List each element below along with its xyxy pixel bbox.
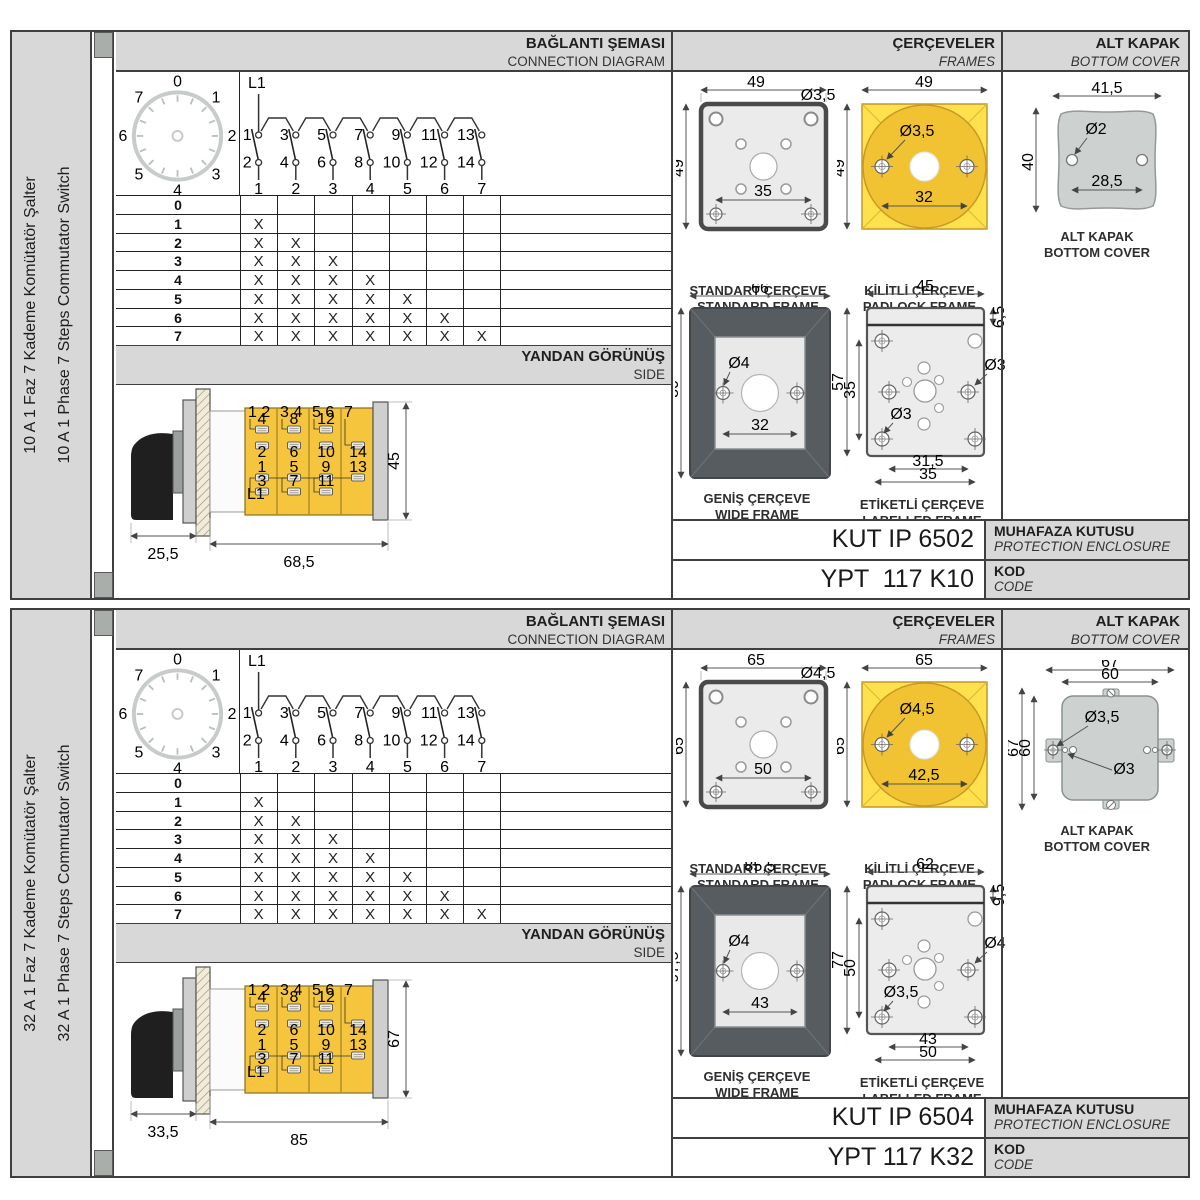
side-view-drawing: 1 24213L13 486575 612109117141333,58567	[116, 963, 673, 1176]
svg-text:2: 2	[243, 733, 252, 750]
svg-text:7: 7	[344, 982, 353, 999]
bottom-cover: 41,540Ø228,5 ALT KAPAK BOTTOM COVER	[1006, 82, 1188, 260]
svg-text:9,5: 9,5	[991, 884, 1008, 906]
svg-text:35: 35	[919, 466, 937, 483]
svg-text:Ø4,5: Ø4,5	[800, 665, 835, 682]
bottom-cover: 67606760Ø3,5Ø3 ALT KAPAK BOTTOM COVER	[1006, 660, 1188, 854]
connection-header-tr: BAĞLANTI ŞEMASI	[116, 35, 665, 54]
cover-header-en: BOTTOM COVER	[1003, 54, 1180, 70]
svg-text:8: 8	[290, 989, 299, 1006]
svg-text:Ø3: Ø3	[1113, 761, 1134, 778]
labelled-caption-tr: ETİKETLİ ÇERÇEVE	[860, 497, 984, 513]
enclosure-label-en: PROTECTION ENCLOSURE	[994, 539, 1188, 554]
svg-text:35: 35	[754, 183, 772, 200]
svg-text:9: 9	[391, 705, 400, 722]
binding-square-bottom	[94, 1150, 113, 1176]
svg-text:4: 4	[366, 759, 375, 773]
labelled-frame: 629,57750Ø4Ø3,54350 ETİKETLİ ÇERÇEVE LAB…	[838, 856, 1006, 1106]
step-contact-table: 01X2XX3XXX4XXXX5XXXXX6XXXXXX7XXXXXXX	[116, 195, 673, 345]
svg-text:11: 11	[421, 127, 438, 144]
svg-text:8: 8	[290, 411, 299, 428]
svg-text:45: 45	[916, 278, 934, 295]
connection-header-tr: BAĞLANTI ŞEMASI	[116, 613, 665, 632]
svg-text:62: 62	[916, 856, 934, 873]
cover-header: ALT KAPAK BOTTOM COVER	[1003, 32, 1188, 70]
labelled-caption-tr: ETİKETLİ ÇERÇEVE	[860, 1075, 984, 1091]
cover-caption-en: BOTTOM COVER	[1044, 839, 1150, 855]
svg-text:32: 32	[751, 417, 769, 434]
frames-header-en: FRAMES	[673, 632, 995, 648]
svg-text:6: 6	[317, 155, 326, 172]
connection-header: BAĞLANTI ŞEMASI CONNECTION DIAGRAM	[116, 610, 673, 648]
section-main: BAĞLANTI ŞEMASI CONNECTION DIAGRAM ÇERÇE…	[116, 32, 1188, 598]
code-block: KUT IP 6502 MUHAFAZA KUTUSU PROTECTION E…	[673, 519, 1188, 598]
svg-text:85,5: 85,5	[744, 862, 775, 875]
svg-text:32: 32	[915, 189, 933, 206]
standard-frame-drawing: 65Ø4,56550	[676, 654, 841, 859]
svg-text:10: 10	[383, 733, 401, 750]
cover-caption-tr: ALT KAPAK	[1044, 229, 1150, 245]
enclosure-label-tr: MUHAFAZA KUTUSU	[994, 1101, 1188, 1117]
side-view-header: YANDAN GÖRÜNÜŞ SIDE	[116, 345, 673, 385]
svg-text:5: 5	[403, 181, 412, 195]
svg-text:4: 4	[173, 760, 182, 773]
wide-caption-tr: GENİŞ ÇERÇEVE	[704, 1069, 811, 1085]
svg-text:9: 9	[391, 127, 400, 144]
product-code-value: YPT 117 K10	[673, 561, 984, 599]
svg-text:1: 1	[212, 89, 221, 106]
svg-text:6: 6	[440, 759, 449, 773]
svg-text:2: 2	[291, 181, 300, 195]
bottom-cover-drawing: 41,540Ø228,5	[1008, 82, 1186, 227]
column-divider-1	[671, 610, 673, 1176]
product-code-row: YPT 117 K32 KOD CODE	[673, 1139, 1188, 1177]
wide-frame-caption: GENİŞ ÇERÇEVE WIDE FRAME	[704, 1069, 811, 1100]
binding-strip	[94, 610, 114, 1176]
svg-text:1: 1	[243, 705, 252, 722]
product-code-label: KOD CODE	[984, 561, 1188, 599]
svg-text:49: 49	[915, 76, 933, 91]
product-section-10a: 10 A 1 Faz 7 Kademe Komütatör Şalter 10 …	[10, 30, 1190, 600]
frames-header-en: FRAMES	[673, 54, 995, 70]
product-title-tr: 32 A 1 Faz 7 Kademe Komütatör Şalter	[22, 754, 40, 1032]
cover-header-tr: ALT KAPAK	[1003, 35, 1180, 54]
svg-text:5: 5	[135, 744, 144, 761]
svg-text:4: 4	[173, 182, 182, 195]
svg-text:6: 6	[317, 733, 326, 750]
connection-circuit-diagram: L112134256378491051112613147	[240, 72, 673, 195]
svg-text:1: 1	[254, 181, 263, 195]
section-main: BAĞLANTI ŞEMASI CONNECTION DIAGRAM ÇERÇE…	[116, 610, 1188, 1176]
padlock-frame-drawing: 6565Ø4,542,5	[837, 654, 1002, 859]
svg-text:12: 12	[317, 989, 335, 1006]
side-header-en: SIDE	[116, 945, 665, 961]
svg-text:49: 49	[676, 159, 687, 177]
frames-header: ÇERÇEVELER FRAMES	[673, 610, 1003, 648]
svg-text:3: 3	[280, 705, 289, 722]
enclosure-label-tr: MUHAFAZA KUTUSU	[994, 523, 1188, 539]
svg-text:7: 7	[290, 1051, 299, 1068]
cover-caption-tr: ALT KAPAK	[1044, 823, 1150, 839]
column-divider-1	[671, 32, 673, 598]
svg-text:10: 10	[383, 155, 401, 172]
bottom-cover-caption: ALT KAPAK BOTTOM COVER	[1044, 823, 1150, 854]
svg-text:5: 5	[403, 759, 412, 773]
enclosure-code-row: KUT IP 6504 MUHAFAZA KUTUSU PROTECTION E…	[673, 1099, 1188, 1139]
cover-caption-en: BOTTOM COVER	[1044, 245, 1150, 261]
svg-text:Ø3,5: Ø3,5	[800, 87, 835, 104]
svg-text:25,5: 25,5	[147, 546, 178, 563]
svg-text:Ø2: Ø2	[1085, 121, 1106, 138]
svg-text:7: 7	[354, 705, 363, 722]
svg-text:Ø3: Ø3	[890, 406, 911, 423]
wide-frame: 85,597,5Ø443 GENİŞ ÇERÇEVE WIDE FRAME	[676, 862, 838, 1100]
svg-text:4: 4	[280, 733, 289, 750]
svg-text:67: 67	[386, 1030, 403, 1048]
svg-text:13: 13	[457, 127, 475, 144]
svg-text:3: 3	[212, 166, 221, 183]
column-divider-2	[1001, 610, 1003, 1097]
enclosure-code-value: KUT IP 6502	[673, 521, 984, 559]
wide-frame-caption: GENİŞ ÇERÇEVE WIDE FRAME	[704, 491, 811, 522]
svg-text:50: 50	[842, 959, 859, 977]
svg-text:85: 85	[290, 1132, 308, 1149]
column-divider-2	[1001, 32, 1003, 519]
svg-text:Ø3,5: Ø3,5	[1085, 709, 1120, 726]
code-block: KUT IP 6504 MUHAFAZA KUTUSU PROTECTION E…	[673, 1097, 1188, 1176]
rotary-dial-diagram: 01234567	[116, 650, 240, 773]
svg-text:2: 2	[291, 759, 300, 773]
svg-text:65: 65	[915, 654, 933, 669]
svg-text:5: 5	[317, 127, 326, 144]
bottom-cover-caption: ALT KAPAK BOTTOM COVER	[1044, 229, 1150, 260]
svg-text:0: 0	[173, 73, 182, 90]
binding-square-bottom	[94, 572, 113, 598]
cover-header-tr: ALT KAPAK	[1003, 613, 1180, 632]
svg-text:L1: L1	[247, 1064, 265, 1081]
svg-text:4: 4	[258, 411, 267, 428]
side-view-drawing: 1 24213L13 486575 612109117141325,568,54…	[116, 385, 673, 598]
section-sidebar: 10 A 1 Faz 7 Kademe Komütatör Şalter 10 …	[12, 32, 92, 598]
wide-caption-tr: GENİŞ ÇERÇEVE	[704, 491, 811, 507]
product-code-value: YPT 117 K32	[673, 1139, 984, 1177]
svg-text:4: 4	[280, 155, 289, 172]
labelled-frame: 456,55735Ø3Ø331,535 ETİKETLİ ÇERÇEVE LAB…	[838, 278, 1006, 528]
svg-text:12: 12	[420, 733, 438, 750]
svg-text:65: 65	[747, 654, 765, 669]
svg-text:Ø3,5: Ø3,5	[900, 123, 935, 140]
wide-frame-drawing: 6680Ø432	[675, 284, 840, 489]
frames-header: ÇERÇEVELER FRAMES	[673, 32, 1003, 70]
connection-header: BAĞLANTI ŞEMASI CONNECTION DIAGRAM	[116, 32, 673, 70]
svg-text:12: 12	[317, 411, 335, 428]
svg-text:0: 0	[173, 651, 182, 668]
svg-text:12: 12	[420, 155, 438, 172]
cover-header-en: BOTTOM COVER	[1003, 632, 1180, 648]
step-contact-table: 01X2XX3XXX4XXXX5XXXXX6XXXXXX7XXXXXXX	[116, 773, 673, 923]
svg-text:Ø4,5: Ø4,5	[900, 701, 935, 718]
header-band: BAĞLANTI ŞEMASI CONNECTION DIAGRAM ÇERÇE…	[116, 610, 1188, 650]
product-title-en: 10 A 1 Phase 7 Steps Commutator Switch	[56, 166, 74, 463]
svg-text:1: 1	[243, 127, 252, 144]
svg-text:49: 49	[837, 159, 848, 177]
svg-text:41,5: 41,5	[1091, 82, 1122, 97]
svg-text:7: 7	[135, 89, 144, 106]
binding-square-top	[94, 32, 113, 58]
svg-text:L1: L1	[248, 653, 266, 670]
svg-text:45: 45	[386, 452, 403, 470]
svg-text:2: 2	[228, 705, 237, 722]
svg-text:7: 7	[135, 667, 144, 684]
code-label-en: CODE	[994, 1157, 1188, 1172]
svg-text:3: 3	[212, 744, 221, 761]
frames-header-tr: ÇERÇEVELER	[673, 613, 995, 632]
svg-text:11: 11	[318, 1051, 335, 1068]
svg-text:6,5: 6,5	[991, 306, 1008, 328]
standard-frame: 49Ø3,54935 STANDART ÇERÇEVE STANDARD FRA…	[678, 76, 838, 314]
connection-circuit-diagram: L112134256378491051112613147	[240, 650, 673, 773]
standard-frame: 65Ø4,56550 STANDART ÇERÇEVE STANDARD FRA…	[678, 654, 838, 892]
code-label-en: CODE	[994, 579, 1188, 594]
padlock-frame-drawing: 4949Ø3,532	[837, 76, 1002, 281]
binding-strip	[94, 32, 114, 598]
svg-text:60: 60	[1101, 666, 1119, 683]
product-title-tr: 10 A 1 Faz 7 Kademe Komütatör Şalter	[22, 176, 40, 454]
svg-text:7: 7	[477, 759, 486, 773]
wide-frame-drawing: 85,597,5Ø443	[675, 862, 840, 1067]
svg-text:13: 13	[457, 705, 475, 722]
section-sidebar: 32 A 1 Faz 7 Kademe Komütatör Şalter 32 …	[12, 610, 92, 1176]
rotary-dial-diagram: 01234567	[116, 72, 240, 195]
svg-text:68,5: 68,5	[283, 554, 314, 571]
labelled-frame-drawing: 629,57750Ø4Ø3,54350	[827, 856, 1017, 1073]
product-section-32a: 32 A 1 Faz 7 Kademe Komütatör Şalter 32 …	[10, 608, 1190, 1178]
svg-text:6: 6	[119, 705, 128, 722]
frames-header-tr: ÇERÇEVELER	[673, 35, 995, 54]
svg-text:42,5: 42,5	[908, 767, 939, 784]
binding-square-top	[94, 610, 113, 636]
enclosure-label-en: PROTECTION ENCLOSURE	[994, 1117, 1188, 1132]
svg-text:14: 14	[457, 155, 475, 172]
svg-text:L1: L1	[248, 75, 266, 92]
svg-text:14: 14	[457, 733, 475, 750]
svg-text:43: 43	[751, 995, 769, 1012]
svg-text:35: 35	[842, 381, 859, 399]
svg-text:4: 4	[258, 989, 267, 1006]
connection-header-en: CONNECTION DIAGRAM	[116, 632, 665, 648]
svg-text:2: 2	[228, 127, 237, 144]
wide-frame: 6680Ø432 GENİŞ ÇERÇEVE WIDE FRAME	[676, 284, 838, 522]
svg-text:11: 11	[421, 705, 438, 722]
cover-header: ALT KAPAK BOTTOM COVER	[1003, 610, 1188, 648]
svg-text:50: 50	[919, 1044, 937, 1061]
svg-text:7: 7	[344, 404, 353, 421]
labelled-frame-drawing: 456,55735Ø3Ø331,535	[827, 278, 1017, 495]
svg-text:L1: L1	[247, 486, 265, 503]
svg-text:65: 65	[676, 737, 687, 755]
svg-text:7: 7	[477, 181, 486, 195]
svg-text:80: 80	[675, 380, 682, 398]
svg-text:5: 5	[135, 166, 144, 183]
product-code-label: KOD CODE	[984, 1139, 1188, 1177]
svg-text:11: 11	[318, 473, 335, 490]
enclosure-code-label: MUHAFAZA KUTUSU PROTECTION ENCLOSURE	[984, 521, 1188, 559]
svg-text:2: 2	[243, 155, 252, 172]
svg-text:28,5: 28,5	[1091, 173, 1122, 190]
code-label-tr: KOD	[994, 563, 1188, 579]
svg-text:Ø4: Ø4	[728, 355, 749, 372]
svg-text:50: 50	[754, 761, 772, 778]
svg-text:6: 6	[119, 127, 128, 144]
svg-text:60: 60	[1017, 739, 1034, 757]
svg-text:8: 8	[354, 155, 363, 172]
svg-text:Ø4: Ø4	[728, 933, 749, 950]
svg-text:7: 7	[354, 127, 363, 144]
svg-text:4: 4	[366, 181, 375, 195]
side-header-tr: YANDAN GÖRÜNÜŞ	[116, 926, 665, 945]
svg-text:Ø3,5: Ø3,5	[884, 984, 919, 1001]
product-code-row: YPT 117 K10 KOD CODE	[673, 561, 1188, 599]
svg-text:3: 3	[280, 127, 289, 144]
svg-text:33,5: 33,5	[147, 1124, 178, 1141]
svg-text:13: 13	[349, 1037, 367, 1054]
svg-text:5: 5	[317, 705, 326, 722]
svg-text:49: 49	[747, 76, 765, 91]
svg-text:3: 3	[329, 181, 338, 195]
product-title-en: 32 A 1 Phase 7 Steps Commutator Switch	[56, 744, 74, 1041]
enclosure-code-row: KUT IP 6502 MUHAFAZA KUTUSU PROTECTION E…	[673, 521, 1188, 561]
standard-frame-drawing: 49Ø3,54935	[676, 76, 841, 281]
svg-text:8: 8	[354, 733, 363, 750]
header-band: BAĞLANTI ŞEMASI CONNECTION DIAGRAM ÇERÇE…	[116, 32, 1188, 72]
side-header-en: SIDE	[116, 367, 665, 383]
enclosure-code-label: MUHAFAZA KUTUSU PROTECTION ENCLOSURE	[984, 1099, 1188, 1137]
side-header-tr: YANDAN GÖRÜNÜŞ	[116, 348, 665, 367]
svg-text:65: 65	[837, 737, 848, 755]
svg-text:40: 40	[1020, 153, 1037, 171]
svg-text:1: 1	[254, 759, 263, 773]
enclosure-code-value: KUT IP 6504	[673, 1099, 984, 1137]
svg-text:3: 3	[329, 759, 338, 773]
connection-header-en: CONNECTION DIAGRAM	[116, 54, 665, 70]
svg-text:66: 66	[751, 284, 769, 297]
svg-text:6: 6	[440, 181, 449, 195]
svg-text:13: 13	[349, 459, 367, 476]
side-view-header: YANDAN GÖRÜNÜŞ SIDE	[116, 923, 673, 963]
svg-text:1: 1	[212, 667, 221, 684]
code-label-tr: KOD	[994, 1141, 1188, 1157]
svg-text:97,5: 97,5	[675, 951, 682, 982]
svg-text:7: 7	[290, 473, 299, 490]
bottom-cover-drawing: 67606760Ø3,5Ø3	[1008, 660, 1186, 821]
